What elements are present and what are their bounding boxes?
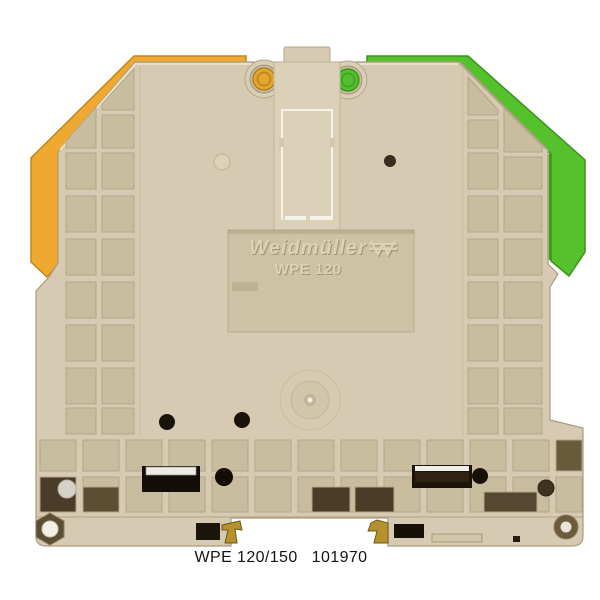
label-plate-shadow bbox=[228, 230, 414, 234]
brass-hook-right bbox=[368, 520, 388, 543]
terminal-block-image: Weidmüller Weidmüller WPE 120 WPE 120 bbox=[0, 0, 600, 600]
mounting-round-recess bbox=[554, 515, 578, 539]
cell bbox=[468, 325, 498, 361]
cell bbox=[255, 440, 291, 471]
cell bbox=[102, 196, 134, 232]
cell-deep bbox=[312, 487, 350, 512]
cell-deep bbox=[484, 492, 537, 512]
cell bbox=[66, 196, 96, 232]
cell bbox=[83, 440, 119, 471]
cell bbox=[298, 440, 334, 471]
cell-deep bbox=[355, 487, 394, 512]
channel-nub bbox=[279, 138, 284, 147]
round-hole bbox=[215, 468, 233, 486]
cell bbox=[212, 440, 248, 471]
cell bbox=[102, 115, 134, 148]
cell bbox=[66, 239, 96, 275]
cell bbox=[468, 239, 498, 275]
clip-spring-metal bbox=[415, 466, 469, 471]
din-clip-right bbox=[412, 465, 472, 488]
channel-slot-bar bbox=[310, 216, 332, 220]
cell bbox=[504, 408, 542, 434]
channel-nub bbox=[330, 138, 335, 147]
caption-model: WPE 120/150 bbox=[195, 549, 298, 567]
mould-dome bbox=[214, 154, 230, 170]
cell bbox=[40, 440, 76, 471]
cell bbox=[66, 325, 96, 361]
cell bbox=[66, 408, 96, 434]
clip-spring-shade bbox=[415, 472, 469, 482]
channel-slot-bar bbox=[285, 216, 306, 220]
cell bbox=[513, 440, 549, 471]
molding-pin-tip bbox=[308, 398, 312, 402]
cell bbox=[556, 477, 582, 512]
hex-through-hole bbox=[42, 521, 58, 537]
model-marking: WPE 120 bbox=[275, 261, 342, 278]
foot-slot bbox=[394, 524, 424, 538]
round-hole bbox=[234, 412, 250, 428]
cell bbox=[66, 153, 96, 189]
cell bbox=[504, 196, 542, 232]
cell bbox=[102, 282, 134, 318]
cell bbox=[470, 440, 506, 471]
cell bbox=[66, 282, 96, 318]
cell bbox=[468, 120, 498, 148]
cell bbox=[102, 325, 134, 361]
cell bbox=[504, 368, 542, 404]
cell-deep bbox=[83, 487, 119, 512]
cell bbox=[66, 368, 96, 404]
mould-peg bbox=[58, 480, 76, 498]
cell bbox=[102, 408, 134, 434]
foot-notch bbox=[513, 536, 520, 542]
cell bbox=[468, 196, 498, 232]
caption: WPE 120/150101970 bbox=[0, 549, 562, 567]
brand-marking: Weidmüller bbox=[249, 237, 367, 259]
din-clip-left bbox=[142, 466, 200, 492]
marker-tab bbox=[284, 47, 330, 64]
foot-tab bbox=[432, 534, 482, 542]
clip-spring-metal bbox=[146, 467, 196, 475]
cell bbox=[468, 153, 498, 189]
cell bbox=[504, 239, 542, 275]
round-hole bbox=[538, 480, 554, 496]
caption-part-number: 101970 bbox=[312, 549, 368, 567]
round-through-hole bbox=[561, 522, 572, 533]
molded-marking bbox=[232, 282, 258, 291]
round-hole bbox=[159, 414, 175, 430]
cell bbox=[102, 239, 134, 275]
cell bbox=[468, 282, 498, 318]
cell bbox=[504, 325, 542, 361]
label-plate: Weidmüller Weidmüller WPE 120 WPE 120 bbox=[228, 230, 414, 332]
round-hole bbox=[472, 468, 488, 484]
screw-yellow bbox=[253, 68, 275, 90]
cell bbox=[468, 408, 498, 434]
cell bbox=[341, 440, 377, 471]
foot-slot bbox=[196, 523, 220, 540]
cell-deep bbox=[556, 440, 582, 471]
center-channel bbox=[274, 62, 340, 232]
pin-hole bbox=[384, 155, 396, 167]
product-photo: Weidmüller Weidmüller WPE 120 WPE 120 bbox=[0, 0, 600, 600]
cell bbox=[504, 157, 542, 189]
cell bbox=[102, 368, 134, 404]
cell bbox=[102, 153, 134, 189]
cell bbox=[468, 368, 498, 404]
cell bbox=[504, 282, 542, 318]
cell bbox=[255, 477, 291, 512]
